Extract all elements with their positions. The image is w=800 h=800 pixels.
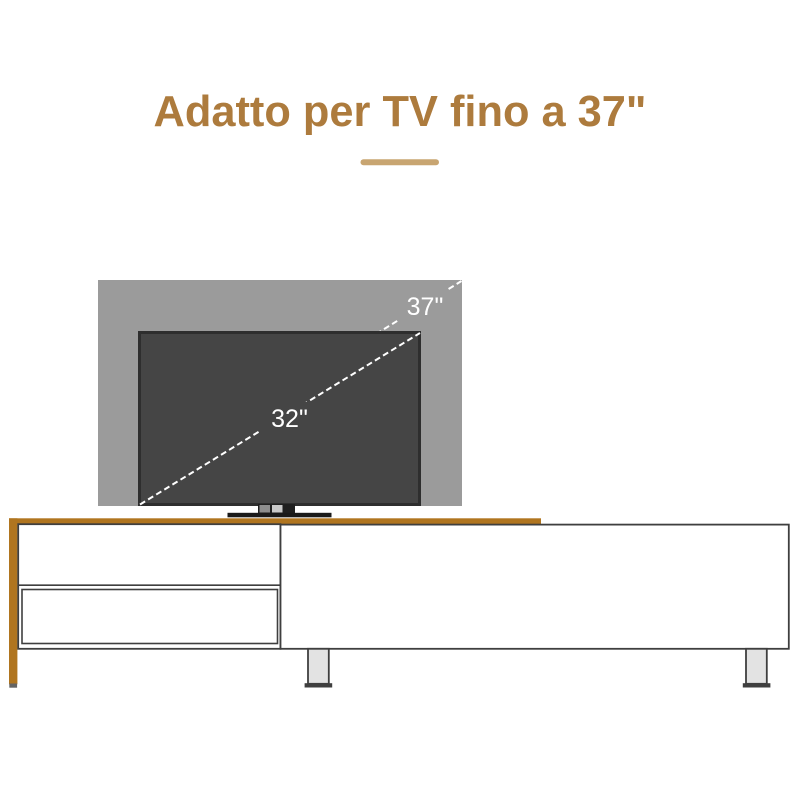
svg-text:32": 32" [271,405,308,433]
svg-text:37": 37" [407,293,444,321]
svg-text:Adatto per TV fino a 37": Adatto per TV fino a 37" [154,87,647,136]
